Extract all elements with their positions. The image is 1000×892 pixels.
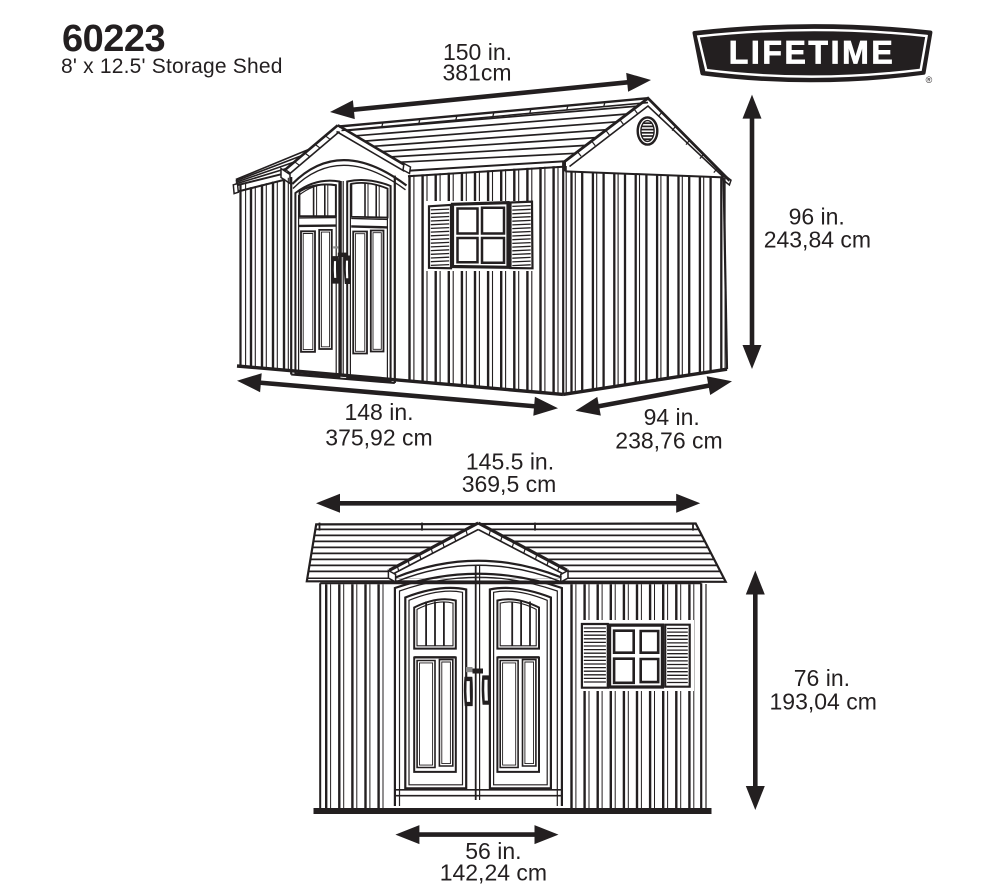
svg-text:8' x 12.5' Storage Shed: 8' x 12.5' Storage Shed xyxy=(61,55,283,78)
svg-text:®: ® xyxy=(926,75,933,85)
svg-text:76 in.: 76 in. xyxy=(794,665,850,691)
svg-text:LIFETIME: LIFETIME xyxy=(729,35,896,71)
svg-text:369,5 cm: 369,5 cm xyxy=(462,471,557,497)
svg-text:381cm: 381cm xyxy=(442,60,511,86)
svg-text:94 in.: 94 in. xyxy=(644,404,700,430)
svg-text:193,04 cm: 193,04 cm xyxy=(769,689,876,715)
svg-text:148 in.: 148 in. xyxy=(344,399,413,425)
svg-text:238,76 cm: 238,76 cm xyxy=(615,428,722,454)
svg-text:60223: 60223 xyxy=(62,18,165,60)
svg-text:142,24 cm: 142,24 cm xyxy=(440,860,547,886)
svg-text:243,84 cm: 243,84 cm xyxy=(764,227,871,253)
svg-text:375,92 cm: 375,92 cm xyxy=(325,425,432,451)
